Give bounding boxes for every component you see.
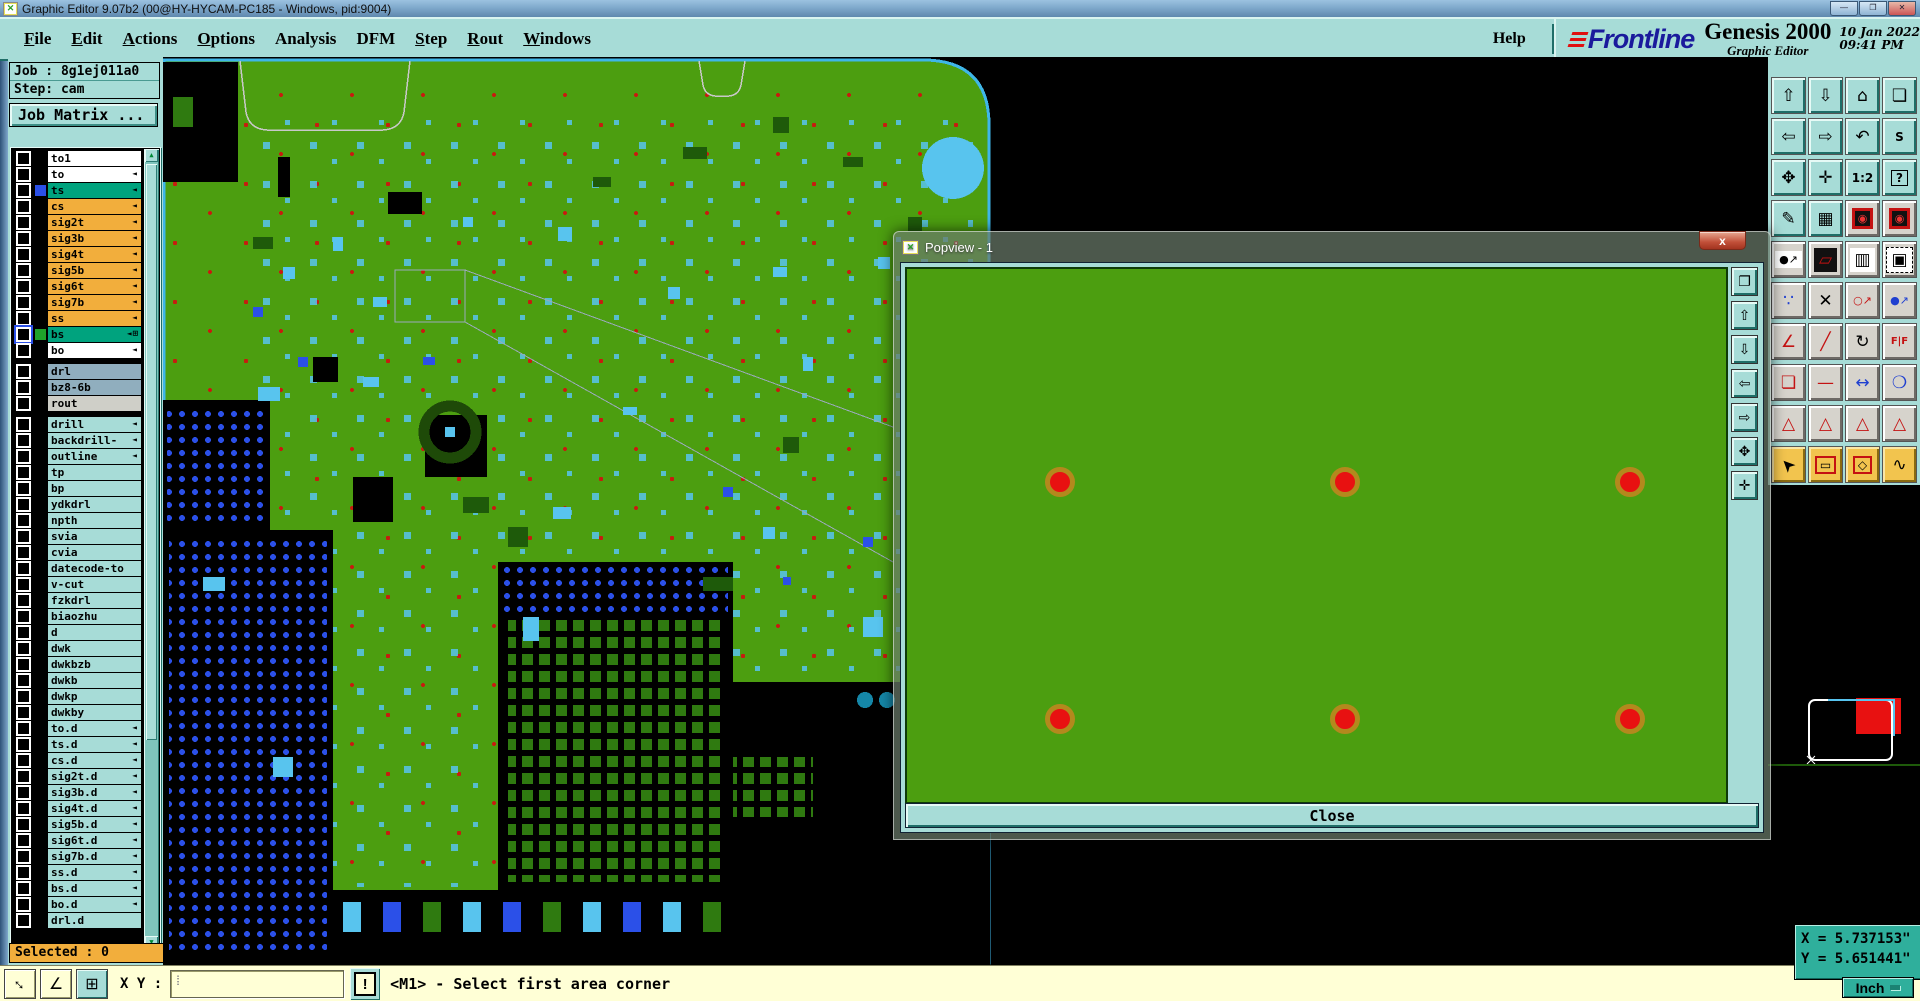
layer-name-field[interactable]: dwkp ◄ [48,689,141,704]
view-windows-xy-button[interactable]: ❏ [1882,77,1917,114]
layer-color-swatch [35,249,46,260]
layer-name-field[interactable]: to.d ◄ [48,721,141,736]
layer-row[interactable]: sig7b ◄ [13,294,141,310]
grid-window-button[interactable]: ⊞ [76,969,108,999]
layer-name-field[interactable]: fzkdrl ◄ [48,593,141,608]
layer-name-field[interactable]: dwkb ◄ [48,673,141,688]
toolbar-icon: △ [1819,414,1832,434]
transform-button[interactable]: ▱ [1808,241,1843,278]
select-pad-button[interactable]: ▣ [1882,241,1917,278]
layer-arrow-icon: ◄ [132,436,137,444]
toolbar-icon: ❍ [1892,373,1907,393]
layer-row[interactable]: d ◄ [13,624,141,640]
layer-row[interactable]: dwkby ◄ [13,704,141,720]
measure-slope-button[interactable]: ╱ [1808,323,1843,360]
toolbar-icon: ⇨ [1818,127,1832,147]
popview-fit-button[interactable]: ✥ [1731,437,1758,466]
layer-row[interactable]: dwkp ◄ [13,688,141,704]
grid-settings-button[interactable]: ▦ [1808,200,1843,237]
popview-close-button[interactable]: Close [905,803,1759,828]
popview-pad-dot [1330,467,1360,497]
layer-name-field[interactable]: sig7b ◄ [48,295,141,310]
layer-name-field[interactable]: ss ◄ [48,311,141,326]
layer-arrow-icon: ◄ [132,420,137,428]
layer-name-field[interactable]: to1 ◄ [48,151,141,166]
popview-viewport[interactable] [905,267,1728,804]
layer-row[interactable]: sig5b.d ◄ [13,816,141,832]
layer-visibility-checkbox[interactable] [16,327,31,342]
layer-name-field[interactable]: sig4t.d ◄ [48,801,141,816]
ruler-button[interactable]: ▥ [1845,241,1880,278]
layer-visibility-checkbox[interactable] [16,897,31,912]
layer-name-field[interactable]: ydkdrl ◄ [48,497,141,512]
layer-arrow-icon: ◄ [132,170,137,178]
layer-visibility-checkbox[interactable] [16,465,31,480]
layer-visibility-checkbox[interactable] [16,641,31,656]
toolbar-icon: — [1817,373,1834,393]
layer-arrow-icon: ◄ [132,234,137,242]
layer-color-swatch [35,675,46,686]
toolbar-icon: ╱ [1820,332,1830,352]
layer-visibility-checkbox[interactable] [16,545,31,560]
layer-row[interactable]: bo ◄ [13,342,141,358]
layer-scrollbar[interactable]: ▲ ▼ [144,149,159,949]
menu-item[interactable]: Windows [513,27,601,51]
layer-visibility-checkbox[interactable] [16,737,31,752]
layer-name-field[interactable]: cs ◄ [48,199,141,214]
view-pan-right-button[interactable]: ⇨ [1808,118,1843,155]
layer-visibility-checkbox[interactable] [16,417,31,432]
dfm-marker-1-button[interactable]: △ [1771,405,1806,442]
layer-name-field[interactable]: tp ◄ [48,465,141,480]
layer-row[interactable]: ss.d ◄ [13,864,141,880]
layer-visibility-checkbox[interactable] [16,561,31,576]
navigator-graphic [1768,548,1920,924]
layer-color-swatch [35,265,46,276]
layer-row[interactable]: sig3b ◄ [13,230,141,246]
layer-name-field[interactable]: cs.d ◄ [48,753,141,768]
layer-visibility-checkbox[interactable] [16,231,31,246]
scale-1-2-button[interactable]: 1:2 [1845,159,1880,196]
layer-name-field[interactable]: biaozhu ◄ [48,609,141,624]
layer-row[interactable]: dwkb ◄ [13,672,141,688]
tools-setup-button[interactable]: ✎ [1771,200,1806,237]
layer-row[interactable]: sig2t.d ◄ [13,768,141,784]
layer-visibility-checkbox[interactable] [16,609,31,624]
zoom-center-button[interactable]: ✛ [1808,159,1843,196]
view-zoom-in-button[interactable]: ⇧ [1771,77,1806,114]
layer-row[interactable]: npth ◄ [13,512,141,528]
layer-color-swatch [35,297,46,308]
layer-color-swatch [35,483,46,494]
layer-arrow-icon: ◄ [132,452,137,460]
layer-row[interactable]: biaozhu ◄ [13,608,141,624]
layer-row[interactable]: ts.d ◄ [13,736,141,752]
popview-pan-right-button[interactable]: ⇨ [1731,403,1758,432]
layer-name-field[interactable]: cvia ◄ [48,545,141,560]
popview-pad-dot [1045,704,1075,734]
job-matrix-button[interactable]: Job Matrix ... [9,103,158,127]
layer-row[interactable]: cs.d ◄ [13,752,141,768]
copy-to-layer-button[interactable]: ○↗ [1845,282,1880,319]
popview-center-button[interactable]: ✛ [1731,471,1758,500]
layer-row[interactable]: sig4t.d ◄ [13,800,141,816]
layer-row[interactable]: to ◄ [13,166,141,182]
text-caret-icon: ⁞ [174,974,180,989]
units-dropdown[interactable]: Inch [1842,977,1914,998]
popview-close-x-button[interactable]: x [1699,231,1746,250]
layer-row[interactable]: ss ◄ [13,310,141,326]
layer-visibility-checkbox[interactable] [16,753,31,768]
minimize-button[interactable]: — [1830,1,1858,16]
toolbar-icon: ⇧ [1781,86,1795,106]
toolbar-icon: ◉ [1852,208,1874,229]
toolbar-icon: △ [1893,414,1906,434]
layer-name-field[interactable]: sig5b ◄ [48,263,141,278]
layer-name-field[interactable]: sig5b.d ◄ [48,817,141,832]
popview-pad-dot [1615,704,1645,734]
scroll-up-icon[interactable]: ▲ [145,149,158,162]
layer-name-field[interactable]: backdrill- ◄ [48,433,141,448]
layer-row[interactable]: ydkdrl ◄ [13,496,141,512]
toolbar-icon: ✕ [1818,291,1832,311]
layer-color-swatch [35,899,46,910]
coord-x: X = 5.737153" [1801,929,1920,949]
toolbar-icon: ∿ [1892,455,1906,475]
layer-visibility-checkbox[interactable] [16,396,31,411]
popview-pan-left-button[interactable]: ⇦ [1731,369,1758,398]
layer-arrow-icon: ◄ [132,250,137,258]
layer-row[interactable]: to1 ◄ [13,150,141,166]
layer-row[interactable]: outline ◄ [13,448,141,464]
scroll-thumb[interactable] [146,164,157,740]
layer-name-field[interactable]: sig4t ◄ [48,247,141,262]
context-help-button[interactable]: ? [1882,159,1917,196]
layer-row[interactable]: to.d ◄ [13,720,141,736]
mode-select-net-button[interactable]: ∿ [1882,446,1917,483]
layer-visibility-checkbox[interactable] [16,865,31,880]
layer-name-field[interactable]: ts.d ◄ [48,737,141,752]
layer-row[interactable]: svia ◄ [13,528,141,544]
layer-arrow-icon: ◄ [132,202,137,210]
layer-color-swatch [35,515,46,526]
layer-visibility-checkbox[interactable] [16,785,31,800]
measure-angle-ok-button[interactable]: ∠ [40,969,72,999]
layer-name-field[interactable]: v-cut ◄ [48,577,141,592]
toolbar-icon: ◇ [1853,456,1872,474]
layer-color-swatch [35,771,46,782]
popview-pad-dot [1330,704,1360,734]
close-button[interactable]: ✕ [1888,1,1916,16]
layer-name-field[interactable]: rout ◄ [48,396,141,411]
dfm-marker-4-button[interactable]: △ [1882,405,1917,442]
toolbar-icon: ✛ [1818,168,1832,188]
layer-visibility-checkbox[interactable] [16,801,31,816]
layer-name-field[interactable]: sig2t ◄ [48,215,141,230]
pad-stack-button[interactable]: ❍ [1882,364,1917,401]
menu-help[interactable]: Help [1467,24,1554,54]
menu-item[interactable]: Edit [61,27,112,51]
product-name: Genesis 2000 [1704,20,1831,43]
coord-y: Y = 5.651441" [1801,949,1920,969]
layer-row[interactable]: cvia ◄ [13,544,141,560]
layer-name-field[interactable]: sig6t.d ◄ [48,833,141,848]
layer-visibility-checkbox[interactable] [16,705,31,720]
layer-arrow-icon: ◄ [132,186,137,194]
layer-row[interactable]: sig3b.d ◄ [13,784,141,800]
menu-item[interactable]: Actions [113,27,188,51]
dropdown-indicator-icon [1890,985,1900,990]
xy-input-wrap: ⁞ [170,970,344,998]
dfm-marker-3-button[interactable]: △ [1845,405,1880,442]
layer-visibility-checkbox[interactable] [16,199,31,214]
layer-visibility-checkbox[interactable] [16,913,31,928]
layer-row[interactable]: tp ◄ [13,464,141,480]
menu-item[interactable]: File [14,27,61,51]
menu-item[interactable]: Rout [457,27,513,51]
copy-pad-button[interactable]: ❏ [1771,364,1806,401]
layer-arrow-icon: ◄ [132,298,137,306]
layer-name-field[interactable]: ts ◄ [48,183,141,198]
layer-visibility-checkbox[interactable] [16,769,31,784]
layer-row[interactable]: cs ◄ [13,198,141,214]
view-pan-left-button[interactable]: ⇦ [1771,118,1806,155]
popview-zoom-in-button[interactable]: ⇧ [1731,301,1758,330]
layer-name-field[interactable]: ss.d ◄ [48,865,141,880]
layer-row[interactable]: fzkdrl ◄ [13,592,141,608]
cursor-coordinates: X = 5.737153" Y = 5.651441" [1794,924,1920,980]
layer-color-swatch [35,153,46,164]
layer-name-field[interactable]: npth ◄ [48,513,141,528]
layer-visibility-checkbox[interactable] [16,183,31,198]
popview-tool-icon: ✛ [1739,478,1751,494]
layer-row[interactable]: sig4t ◄ [13,246,141,262]
layer-arrow-icon: ◄ [132,724,137,732]
window-titlebar: ✕ Graphic Editor 9.07b2 (00@HY-HYCAM-PC1… [0,0,1920,17]
select-move-button[interactable]: ●↗ [1771,241,1806,278]
layer-name-field[interactable]: sig7b.d ◄ [48,849,141,864]
layer-row[interactable]: bs.d ◄ [13,880,141,896]
layer-row[interactable]: sig6t ◄ [13,278,141,294]
toolbar-icon: ○↗ [1853,294,1872,307]
layer-visibility-checkbox[interactable] [16,364,31,379]
layer-arrow-icon: ◄ [132,218,137,226]
popview-zoom-out-button[interactable]: ⇩ [1731,335,1758,364]
layer-visibility-checkbox[interactable] [16,625,31,640]
statusbar-icon: ∠ [49,974,63,994]
layer-visibility-checkbox[interactable] [16,721,31,736]
toolbar-icon: ∵ [1783,291,1794,311]
toolbar-icon: ✥ [1781,168,1795,188]
layer-row[interactable]: drill ◄ [13,416,141,432]
layer-name-field[interactable]: sig3b.d ◄ [48,785,141,800]
menubar: File Edit Actions Options Analysis DFM S… [0,17,1920,61]
layer-visibility-checkbox[interactable] [16,673,31,688]
layer-row[interactable]: sig5b ◄ [13,262,141,278]
layer-visibility-checkbox[interactable] [16,513,31,528]
layer-name-field[interactable]: sig3b ◄ [48,231,141,246]
menu-item[interactable]: Step [405,27,457,51]
layer-name-field[interactable]: bs ◄ ⊞ [48,327,141,342]
toolbar-icon: ▭ [1815,456,1836,474]
layer-name-field[interactable]: outline ◄ [48,449,141,464]
toolbar-icon: ⌂ [1857,86,1868,106]
maximize-button[interactable]: ❐ [1859,1,1887,16]
toolbar-icon: ▣ [1886,247,1912,273]
layer-row[interactable]: drl.d ◄ [13,912,141,928]
layer-visibility-checkbox[interactable] [16,593,31,608]
view-previous-button[interactable]: ↶ [1845,118,1880,155]
layer-visibility-checkbox[interactable] [16,263,31,278]
layer-row[interactable]: sig7b.d ◄ [13,848,141,864]
net-points-button[interactable]: ∵ [1771,282,1806,319]
mode-select-rect-button[interactable]: ▭ [1808,446,1843,483]
layer-name-field[interactable]: bs.d ◄ [48,881,141,896]
toolbar-icon: △ [1856,414,1869,434]
overview-navigator[interactable] [1768,548,1920,924]
move-to-layer-button[interactable]: ●↗ [1882,282,1917,319]
app-icon: ✕ [3,2,18,16]
layer-visibility-checkbox[interactable] [16,689,31,704]
layer-visibility-checkbox[interactable] [16,849,31,864]
popview-side-toolbar: ❐⇧⇩⇦⇨✥✛ [1731,267,1760,505]
layer-visibility-checkbox[interactable] [16,833,31,848]
popview-tool-icon: ⇦ [1739,376,1751,392]
layer-name-field[interactable]: sig6t ◄ [48,279,141,294]
job-name: Job : 8g1ej011a0 [10,63,159,81]
layer-visibility-checkbox[interactable] [16,380,31,395]
layer-row[interactable]: ts ◄ [13,182,141,198]
layer-arrow-icon: ◄ [132,740,137,748]
layer-extra-icon: ⊞ [133,329,138,339]
layer-color-swatch [35,382,46,393]
layer-name-field[interactable]: to ◄ [48,167,141,182]
layer-visibility-checkbox[interactable] [16,529,31,544]
layer-arrow-icon: ◄ [132,804,137,812]
layer-row[interactable]: dwkbzb ◄ [13,656,141,672]
layer-name-field[interactable]: bo ◄ [48,343,141,358]
toolbar-icon: ▦ [1817,209,1833,229]
xy-coordinate-input[interactable] [181,972,340,996]
toolbar-icon: ⇦ [1781,127,1795,147]
layer-visibility-checkbox[interactable] [16,311,31,326]
zoom-fit-button[interactable]: ✥ [1771,159,1806,196]
layer-visibility-checkbox[interactable] [16,433,31,448]
menu-item[interactable]: DFM [346,27,405,51]
toolbar-icon: ◉ [1889,208,1911,229]
layer-row[interactable]: bz8-6b ◄ [13,379,141,395]
mode-select-button[interactable]: ➤ [1771,446,1806,483]
layer-name-field[interactable]: drl.d ◄ [48,913,141,928]
layer-name-field[interactable]: dwkby ◄ [48,705,141,720]
layer-row[interactable]: bs ◄ ⊞ [13,326,141,342]
layer-name-field[interactable]: sig2t.d ◄ [48,769,141,784]
serpentine-button[interactable]: S [1882,118,1917,155]
layer-row[interactable]: dwk ◄ [13,640,141,656]
layer-row[interactable]: bp ◄ [13,480,141,496]
layer-visibility-checkbox[interactable] [16,247,31,262]
layer-row[interactable]: sig6t.d ◄ [13,832,141,848]
view-zoom-out-button[interactable]: ⇩ [1808,77,1843,114]
layer-row[interactable]: backdrill- ◄ [13,432,141,448]
layer-visibility-checkbox[interactable] [16,817,31,832]
toolbar-icon: ▱ [1814,248,1837,272]
layer-visibility-checkbox[interactable] [16,167,31,182]
layer-visibility-checkbox[interactable] [16,577,31,592]
alert-button[interactable]: ! [354,972,376,996]
job-info: Job : 8g1ej011a0 Step: cam [9,62,160,99]
datetime: 10 Jan 2022 09:41 PM [1839,26,1920,52]
layer-name-field[interactable]: svia ◄ [48,529,141,544]
layer-visibility-checkbox[interactable] [16,151,31,166]
rotate-button[interactable]: ↻ [1845,323,1880,360]
measure-angle-button[interactable]: ∠ [1771,323,1806,360]
layer-name-field[interactable]: drl ◄ [48,364,141,379]
layer-visibility-checkbox[interactable] [16,881,31,896]
menu-item[interactable]: Analysis [265,27,346,51]
stoplight-2-button[interactable]: ◉ [1882,200,1917,237]
layer-visibility-checkbox[interactable] [16,279,31,294]
popview-clone-button[interactable]: ❐ [1731,267,1758,296]
mirror-button[interactable]: F|F [1882,323,1917,360]
layer-row[interactable]: drl ◄ [13,363,141,379]
toolbar-icon: ▥ [1850,248,1874,272]
stoplight-1-button[interactable]: ◉ [1845,200,1880,237]
layer-color-swatch [35,707,46,718]
menu-item[interactable]: Options [187,27,265,51]
layer-name-field[interactable]: bz8-6b ◄ [48,380,141,395]
layer-name-field[interactable]: dwkbzb ◄ [48,657,141,672]
dfm-marker-2-button[interactable]: △ [1808,405,1843,442]
layer-color-swatch [35,169,46,180]
layer-name-field[interactable]: datecode-to ◄ [48,561,141,576]
view-home-button[interactable]: ⌂ [1845,77,1880,114]
layer-color-swatch [35,659,46,670]
layer-visibility-checkbox[interactable] [16,657,31,672]
layer-visibility-checkbox[interactable] [16,497,31,512]
layer-visibility-checkbox[interactable] [16,295,31,310]
layer-color-swatch [35,217,46,228]
layer-row[interactable]: bo.d ◄ [13,896,141,912]
layer-visibility-checkbox[interactable] [16,481,31,496]
toolbar-icon: S [1895,130,1904,144]
measure-distance-button[interactable]: ↔ [1845,364,1880,401]
layer-row[interactable]: sig2t ◄ [13,214,141,230]
layer-name-field[interactable]: dwk ◄ [48,641,141,656]
layer-name-field[interactable]: bo.d ◄ [48,897,141,912]
layer-arrow-icon: ◄ [132,346,137,354]
layer-name-field[interactable]: drill ◄ [48,417,141,432]
layer-row[interactable]: rout ◄ [13,395,141,411]
layer-visibility-checkbox[interactable] [16,449,31,464]
layer-arrow-icon: ◄ [132,900,137,908]
layer-name-field[interactable]: d ◄ [48,625,141,640]
break-segment-button[interactable]: — [1808,364,1843,401]
layer-row[interactable]: v-cut ◄ [13,576,141,592]
logo-stripes-icon [1567,32,1588,47]
mode-select-poly-button[interactable]: ◇ [1845,446,1880,483]
layer-row[interactable]: datecode-to ◄ [13,560,141,576]
toolbar-icon: ❏ [1781,373,1796,393]
clear-selection-button[interactable]: ✕ [1808,282,1843,319]
popview-icon: ✕ [902,240,919,255]
layer-name-field[interactable]: bp ◄ [48,481,141,496]
layer-visibility-checkbox[interactable] [16,215,31,230]
popview-titlebar[interactable]: ✕ Popview - 1 [894,232,1770,262]
zoom-window-button[interactable]: ↔ [4,969,36,999]
layer-visibility-checkbox[interactable] [16,343,31,358]
alert-frame: ! [350,968,380,1000]
